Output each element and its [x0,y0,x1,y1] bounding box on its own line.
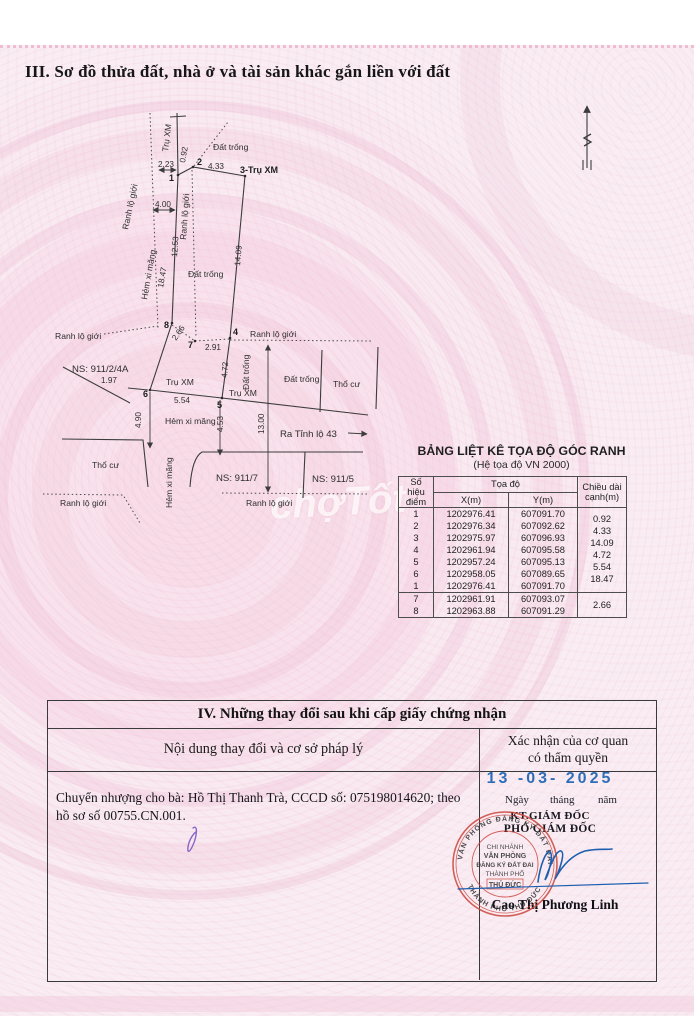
stamp-and-signatures: VĂN PHÒNG ĐĂNG KÝ ĐẤT ĐAI THÀNH PHỐ THỦ … [0,0,694,1024]
stamp-line-4: THÀNH PHỐ [486,868,525,878]
certificate-page: III. Sơ đồ thửa đất, nhà ở và tài sản kh… [0,0,694,1024]
stamp-line-1: CHI NHÁNH [487,842,524,851]
purple-signature-mark [188,827,197,851]
stamp-line-2: VĂN PHÒNG [484,851,527,860]
stamp-line-3: ĐĂNG KÝ ĐẤT ĐAI [476,859,533,869]
